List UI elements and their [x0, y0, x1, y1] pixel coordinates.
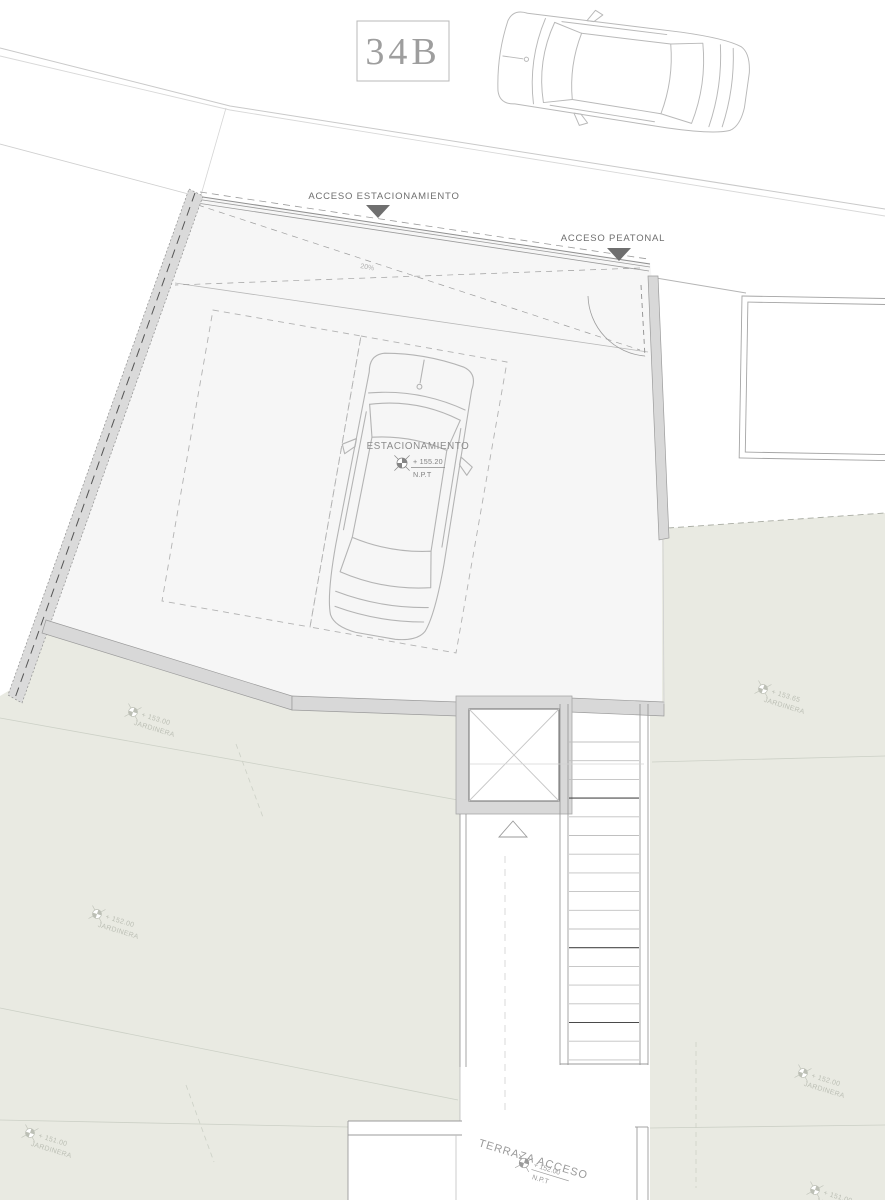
- site-plan: 20%: [0, 0, 885, 1200]
- down-arrow-icon: [366, 205, 390, 218]
- svg-text:N.P.T: N.P.T: [531, 1174, 550, 1186]
- neighbor-structure: [739, 296, 885, 461]
- elevator-shaft: [456, 696, 572, 814]
- street-car: [492, 0, 755, 148]
- parking-floor: [46, 196, 664, 706]
- corridor: [460, 814, 527, 1121]
- svg-text:ACCESO PEATONAL: ACCESO PEATONAL: [561, 233, 666, 244]
- stair-treads: [569, 742, 639, 1060]
- svg-text:N.P.T: N.P.T: [413, 470, 432, 479]
- up-arrow-icon: [499, 821, 527, 837]
- svg-text:ACCESO ESTACIONAMIENTO: ACCESO ESTACIONAMIENTO: [308, 191, 459, 202]
- access-parking-label: ACCESO ESTACIONAMIENTO: [308, 191, 459, 218]
- plan-drawing: 20%: [0, 0, 885, 1200]
- unit-badge-label: 34B: [365, 31, 440, 73]
- svg-text:+ 155.20: + 155.20: [413, 457, 443, 466]
- unit-badge: 34B: [357, 21, 449, 81]
- terrace-label: TERRAZA ACCESO + 152.00 N.P.T: [477, 1137, 589, 1191]
- svg-text:ESTACIONAMIENTO: ESTACIONAMIENTO: [367, 441, 470, 452]
- garden-area-right: [650, 513, 885, 1200]
- terrace-walls: [348, 1121, 650, 1200]
- level-marker-icon: [394, 455, 409, 470]
